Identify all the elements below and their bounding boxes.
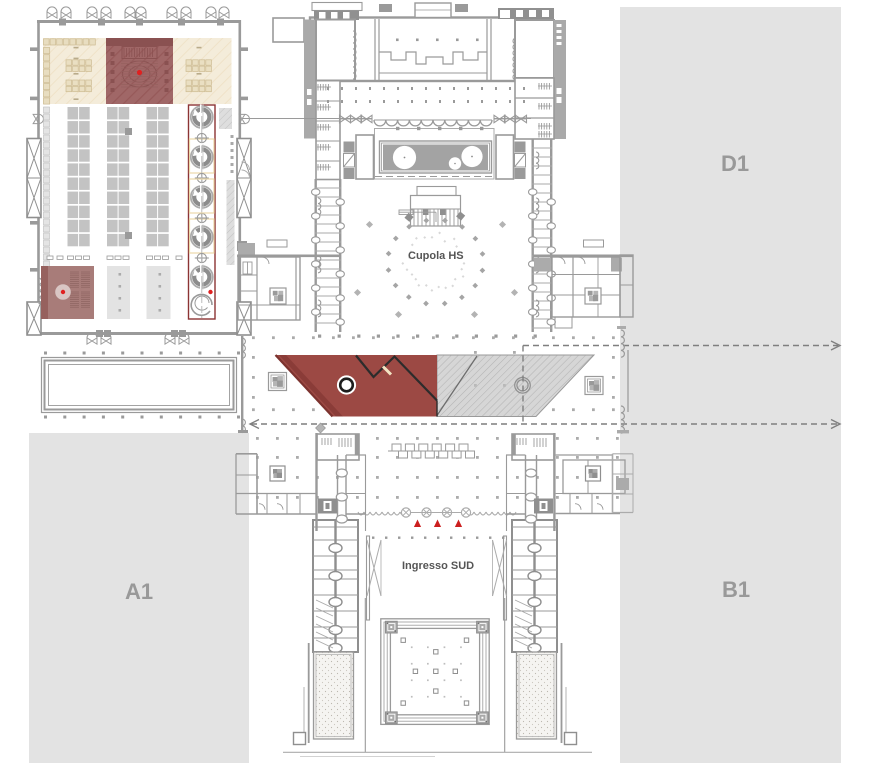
svg-text:Ingresso SUD: Ingresso SUD xyxy=(402,560,474,572)
svg-text:Cupola HS: Cupola HS xyxy=(408,250,464,262)
svg-text:B1: B1 xyxy=(722,577,750,602)
svg-text:D1: D1 xyxy=(721,151,749,176)
svg-text:A1: A1 xyxy=(125,579,153,604)
